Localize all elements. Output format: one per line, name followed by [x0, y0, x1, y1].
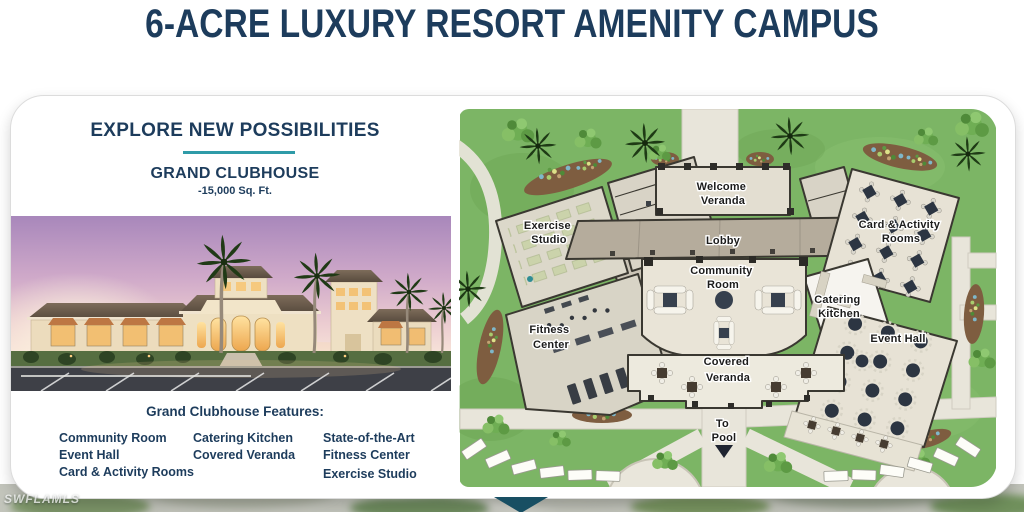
clubhouse-name: GRAND CLUBHOUSE	[11, 165, 459, 183]
feature-item: Fitness Center	[323, 447, 417, 464]
features-title: Grand Clubhouse Features:	[11, 404, 459, 419]
features-column-1: Community Room Event Hall Card & Activit…	[59, 430, 194, 481]
clubhouse-rendering-art	[11, 216, 451, 391]
floorplan-art: Exercise Studio Welcome Veranda Lobby Ca…	[459, 109, 997, 487]
feature-item: Exercise Studio	[323, 466, 417, 483]
features-column-3: State-of-the-Art Fitness Center Exercise…	[323, 430, 417, 483]
front-lawn-and-parking	[11, 351, 451, 391]
floorplan-panel: Exercise Studio Welcome Veranda Lobby Ca…	[459, 109, 997, 487]
down-arrow-marker	[494, 497, 548, 512]
feature-item: Card & Activity Rooms	[59, 464, 194, 481]
feature-item: Catering Kitchen	[193, 430, 295, 447]
brochure-card: EXPLORE NEW POSSIBILITIES GRAND CLUBHOUS…	[10, 95, 1016, 499]
label-lobby: Lobby	[706, 235, 741, 247]
teal-divider	[183, 151, 295, 154]
label-event-hall: Event Hall	[870, 333, 925, 345]
clubhouse-rendering	[11, 216, 451, 391]
brochure-page: 6-ACRE LUXURY RESORT AMENITY CAMPUS SWFL…	[0, 0, 1024, 512]
feature-item: Event Hall	[59, 447, 194, 464]
feature-item: State-of-the-Art	[323, 430, 417, 447]
page-title: 6-ACRE LUXURY RESORT AMENITY CAMPUS	[82, 2, 942, 47]
feature-item: Community Room	[59, 430, 194, 447]
feature-item: Covered Veranda	[193, 447, 295, 464]
mls-watermark: SWFLAMLS	[4, 492, 80, 506]
features-column-2: Catering Kitchen Covered Veranda	[193, 430, 295, 464]
explore-headline: EXPLORE NEW POSSIBILITIES	[11, 120, 459, 142]
clubhouse-size: -15,000 Sq. Ft.	[11, 185, 459, 197]
